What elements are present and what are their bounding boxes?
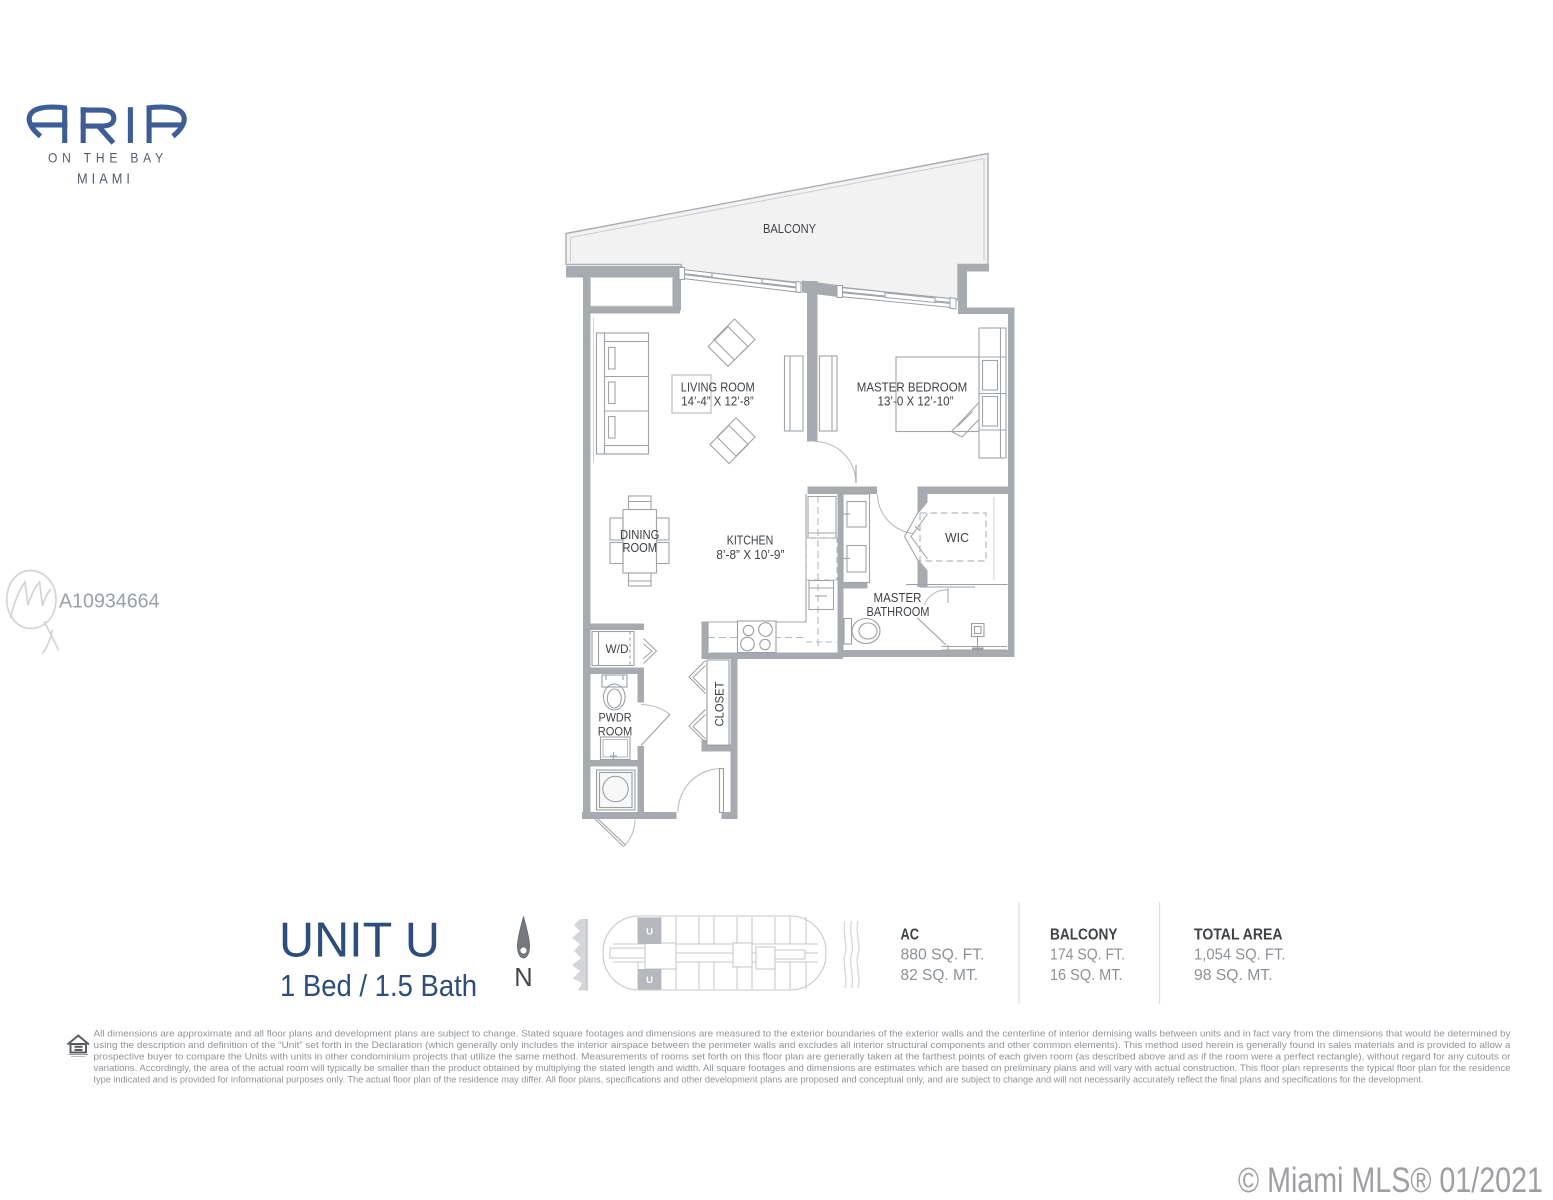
svg-text:BATHROOM: BATHROOM — [867, 604, 930, 619]
svg-text:U: U — [646, 927, 653, 938]
svg-text:ON THE BAY: ON THE BAY — [48, 150, 168, 166]
svg-text:MASTER: MASTER — [874, 590, 922, 605]
svg-text:TOTAL AREA: TOTAL AREA — [1194, 927, 1283, 944]
svg-text:U: U — [646, 975, 653, 986]
svg-text:1,054 SQ. FT.: 1,054 SQ. FT. — [1194, 947, 1286, 964]
svg-text:14’-4” X 12’-8”: 14’-4” X 12’-8” — [681, 393, 754, 408]
svg-text:N: N — [514, 964, 532, 992]
svg-text:PWDR: PWDR — [599, 711, 632, 725]
svg-text:All dimensions are approximate: All dimensions are approximate and all f… — [94, 1027, 1511, 1038]
svg-text:KITCHEN: KITCHEN — [727, 533, 774, 548]
svg-text:ROOM: ROOM — [598, 725, 633, 739]
svg-text:13’-0 X 12’-10”: 13’-0 X 12’-10” — [878, 393, 954, 408]
svg-text:BALCONY: BALCONY — [1050, 927, 1118, 944]
svg-text:© Miami MLS® 01/2021: © Miami MLS® 01/2021 — [1238, 1160, 1543, 1200]
svg-text:using the description and defi: using the description and definition of … — [94, 1039, 1512, 1050]
svg-text:WIC: WIC — [945, 530, 969, 545]
svg-text:MASTER BEDROOM: MASTER BEDROOM — [857, 380, 968, 395]
svg-text:LIVING ROOM: LIVING ROOM — [681, 380, 755, 395]
svg-text:16 SQ. MT.: 16 SQ. MT. — [1050, 967, 1123, 984]
svg-text:UNIT U: UNIT U — [279, 913, 440, 968]
svg-text:A10934664: A10934664 — [59, 589, 160, 612]
svg-text:prospective buyer to compare t: prospective buyer to compare the Units w… — [94, 1051, 1511, 1062]
svg-text:variations. Accordingly, the a: variations. Accordingly, the area of the… — [94, 1062, 1511, 1073]
svg-text:174 SQ. FT.: 174 SQ. FT. — [1050, 947, 1125, 964]
svg-text:8’-8” X 10’-9”: 8’-8” X 10’-9” — [716, 547, 784, 562]
svg-text:W/D: W/D — [606, 642, 629, 656]
svg-text:1 Bed / 1.5 Bath: 1 Bed / 1.5 Bath — [280, 968, 477, 1003]
svg-text:AC: AC — [901, 927, 920, 944]
svg-text:880 SQ. FT.: 880 SQ. FT. — [901, 947, 985, 964]
svg-text:98 SQ. MT.: 98 SQ. MT. — [1194, 967, 1273, 984]
svg-text:82 SQ. MT.: 82 SQ. MT. — [901, 967, 979, 984]
svg-text:type indicated and is provided: type indicated and is provided for infor… — [94, 1074, 1424, 1085]
svg-text:CLOSET: CLOSET — [713, 681, 727, 727]
svg-text:BALCONY: BALCONY — [763, 221, 816, 236]
svg-text:MIAMI: MIAMI — [77, 172, 134, 188]
svg-text:ROOM: ROOM — [622, 540, 657, 555]
